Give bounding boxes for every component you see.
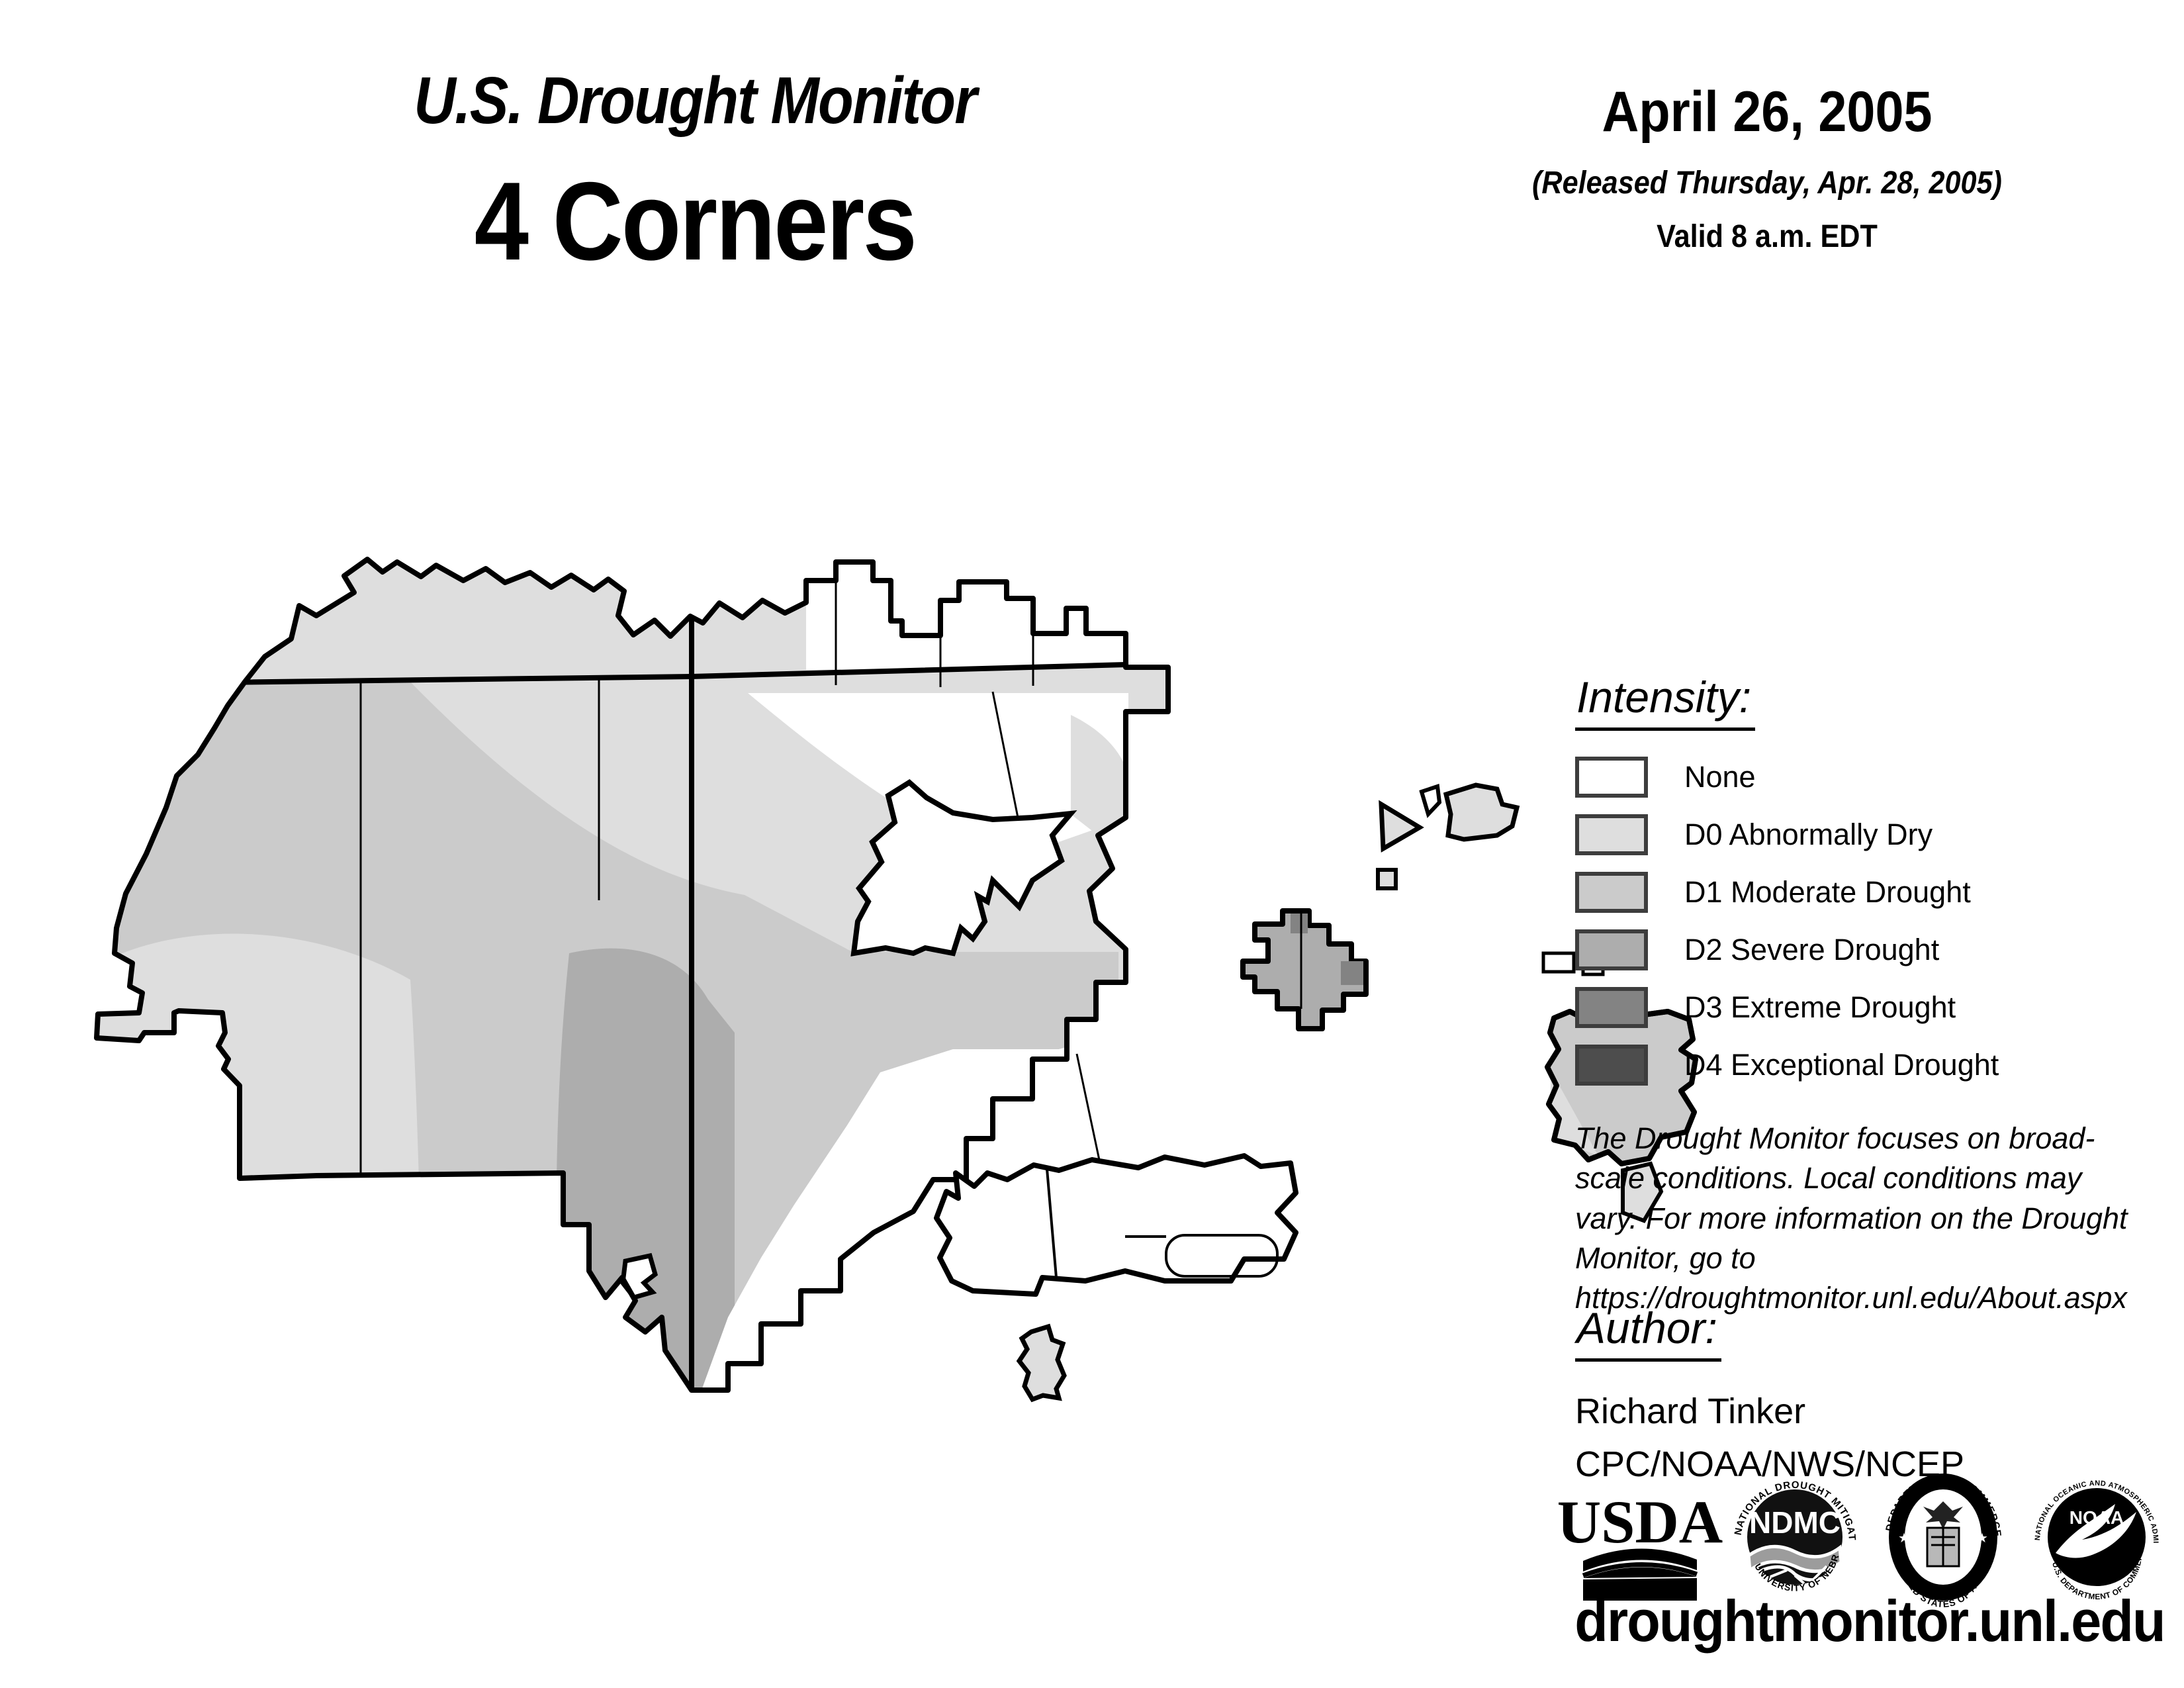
disclaimer-text: The Drought Monitor focuses on broad-sca… bbox=[1575, 1119, 2144, 1318]
date-block: April 26, 2005 (Released Thursday, Apr. … bbox=[1439, 79, 2095, 255]
release-date: (Released Thursday, Apr. 28, 2005) bbox=[1439, 165, 2095, 201]
valid-time: Valid 8 a.m. EDT bbox=[1439, 218, 2095, 255]
island-d0-triangle bbox=[1381, 804, 1420, 849]
ndmc-acronym: NDMC bbox=[1749, 1505, 1841, 1540]
island-hammer-none bbox=[936, 1156, 1296, 1294]
drought-monitor-page: { "title": { "line1": "U.S. Drought Moni… bbox=[0, 0, 2184, 1688]
map-top-counties-white bbox=[806, 562, 1126, 670]
legend-label: D3 Extreme Drought bbox=[1684, 990, 1956, 1025]
svg-text:★: ★ bbox=[1898, 1531, 1910, 1546]
legend-row-d1: D1 Moderate Drought bbox=[1575, 863, 2171, 921]
legend-label: D1 Moderate Drought bbox=[1684, 875, 1971, 910]
legend-row-d2: D2 Severe Drought bbox=[1575, 921, 2171, 978]
legend-label: D2 Severe Drought bbox=[1684, 933, 1939, 967]
usda-wordmark: USDA bbox=[1557, 1488, 1723, 1556]
island-none-rect-1 bbox=[1543, 953, 1574, 972]
legend-row-d3: D3 Extreme Drought bbox=[1575, 978, 2171, 1036]
island-d0-square bbox=[1378, 870, 1396, 888]
legend-row-none: None bbox=[1575, 748, 2171, 806]
legend-label: None bbox=[1684, 760, 1756, 794]
svg-text:★: ★ bbox=[1976, 1531, 1988, 1546]
island-none-sliver bbox=[1422, 786, 1439, 814]
island-d3-patch-1 bbox=[1291, 914, 1308, 933]
map-date: April 26, 2005 bbox=[1439, 79, 2095, 145]
legend-rows: None D0 Abnormally Dry D1 Moderate Droug… bbox=[1575, 748, 2171, 1094]
region-title: 4 Corners bbox=[83, 158, 1306, 285]
author-heading: Author: bbox=[1575, 1303, 1721, 1362]
legend-swatch-none bbox=[1575, 757, 1648, 798]
author-org: CPC/NOAA/NWS/NCEP bbox=[1575, 1444, 1964, 1485]
intensity-legend: Intensity: None D0 Abnormally Dry D1 Mod… bbox=[1575, 672, 2171, 1094]
usda-logo: USDA bbox=[1557, 1488, 1723, 1601]
island-d0-blob-east bbox=[1446, 785, 1517, 839]
legend-row-d4: D4 Exceptional Drought bbox=[1575, 1036, 2171, 1094]
island-d0-blob-south bbox=[1019, 1327, 1064, 1399]
legend-row-d0: D0 Abnormally Dry bbox=[1575, 806, 2171, 863]
legend-swatch-d0 bbox=[1575, 814, 1648, 855]
legend-swatch-d2 bbox=[1575, 929, 1648, 970]
legend-label: D0 Abnormally Dry bbox=[1684, 818, 1933, 852]
author-block: Author: Richard Tinker CPC/NOAA/NWS/NCEP bbox=[1575, 1303, 1964, 1485]
legend-heading: Intensity: bbox=[1575, 672, 1755, 731]
footer-url: droughtmonitor.unl.edu bbox=[1562, 1587, 2178, 1655]
legend-swatch-d4 bbox=[1575, 1045, 1648, 1086]
legend-swatch-d1 bbox=[1575, 872, 1648, 913]
legend-swatch-d3 bbox=[1575, 987, 1648, 1028]
author-name: Richard Tinker bbox=[1575, 1391, 1964, 1432]
page-title: U.S. Drought Monitor bbox=[83, 63, 1306, 139]
title-block: U.S. Drought Monitor 4 Corners bbox=[83, 63, 1306, 285]
legend-label: D4 Exceptional Drought bbox=[1684, 1048, 1999, 1082]
noaa-acronym: NOAA bbox=[2070, 1507, 2124, 1528]
island-d3-patch-2 bbox=[1341, 961, 1363, 985]
